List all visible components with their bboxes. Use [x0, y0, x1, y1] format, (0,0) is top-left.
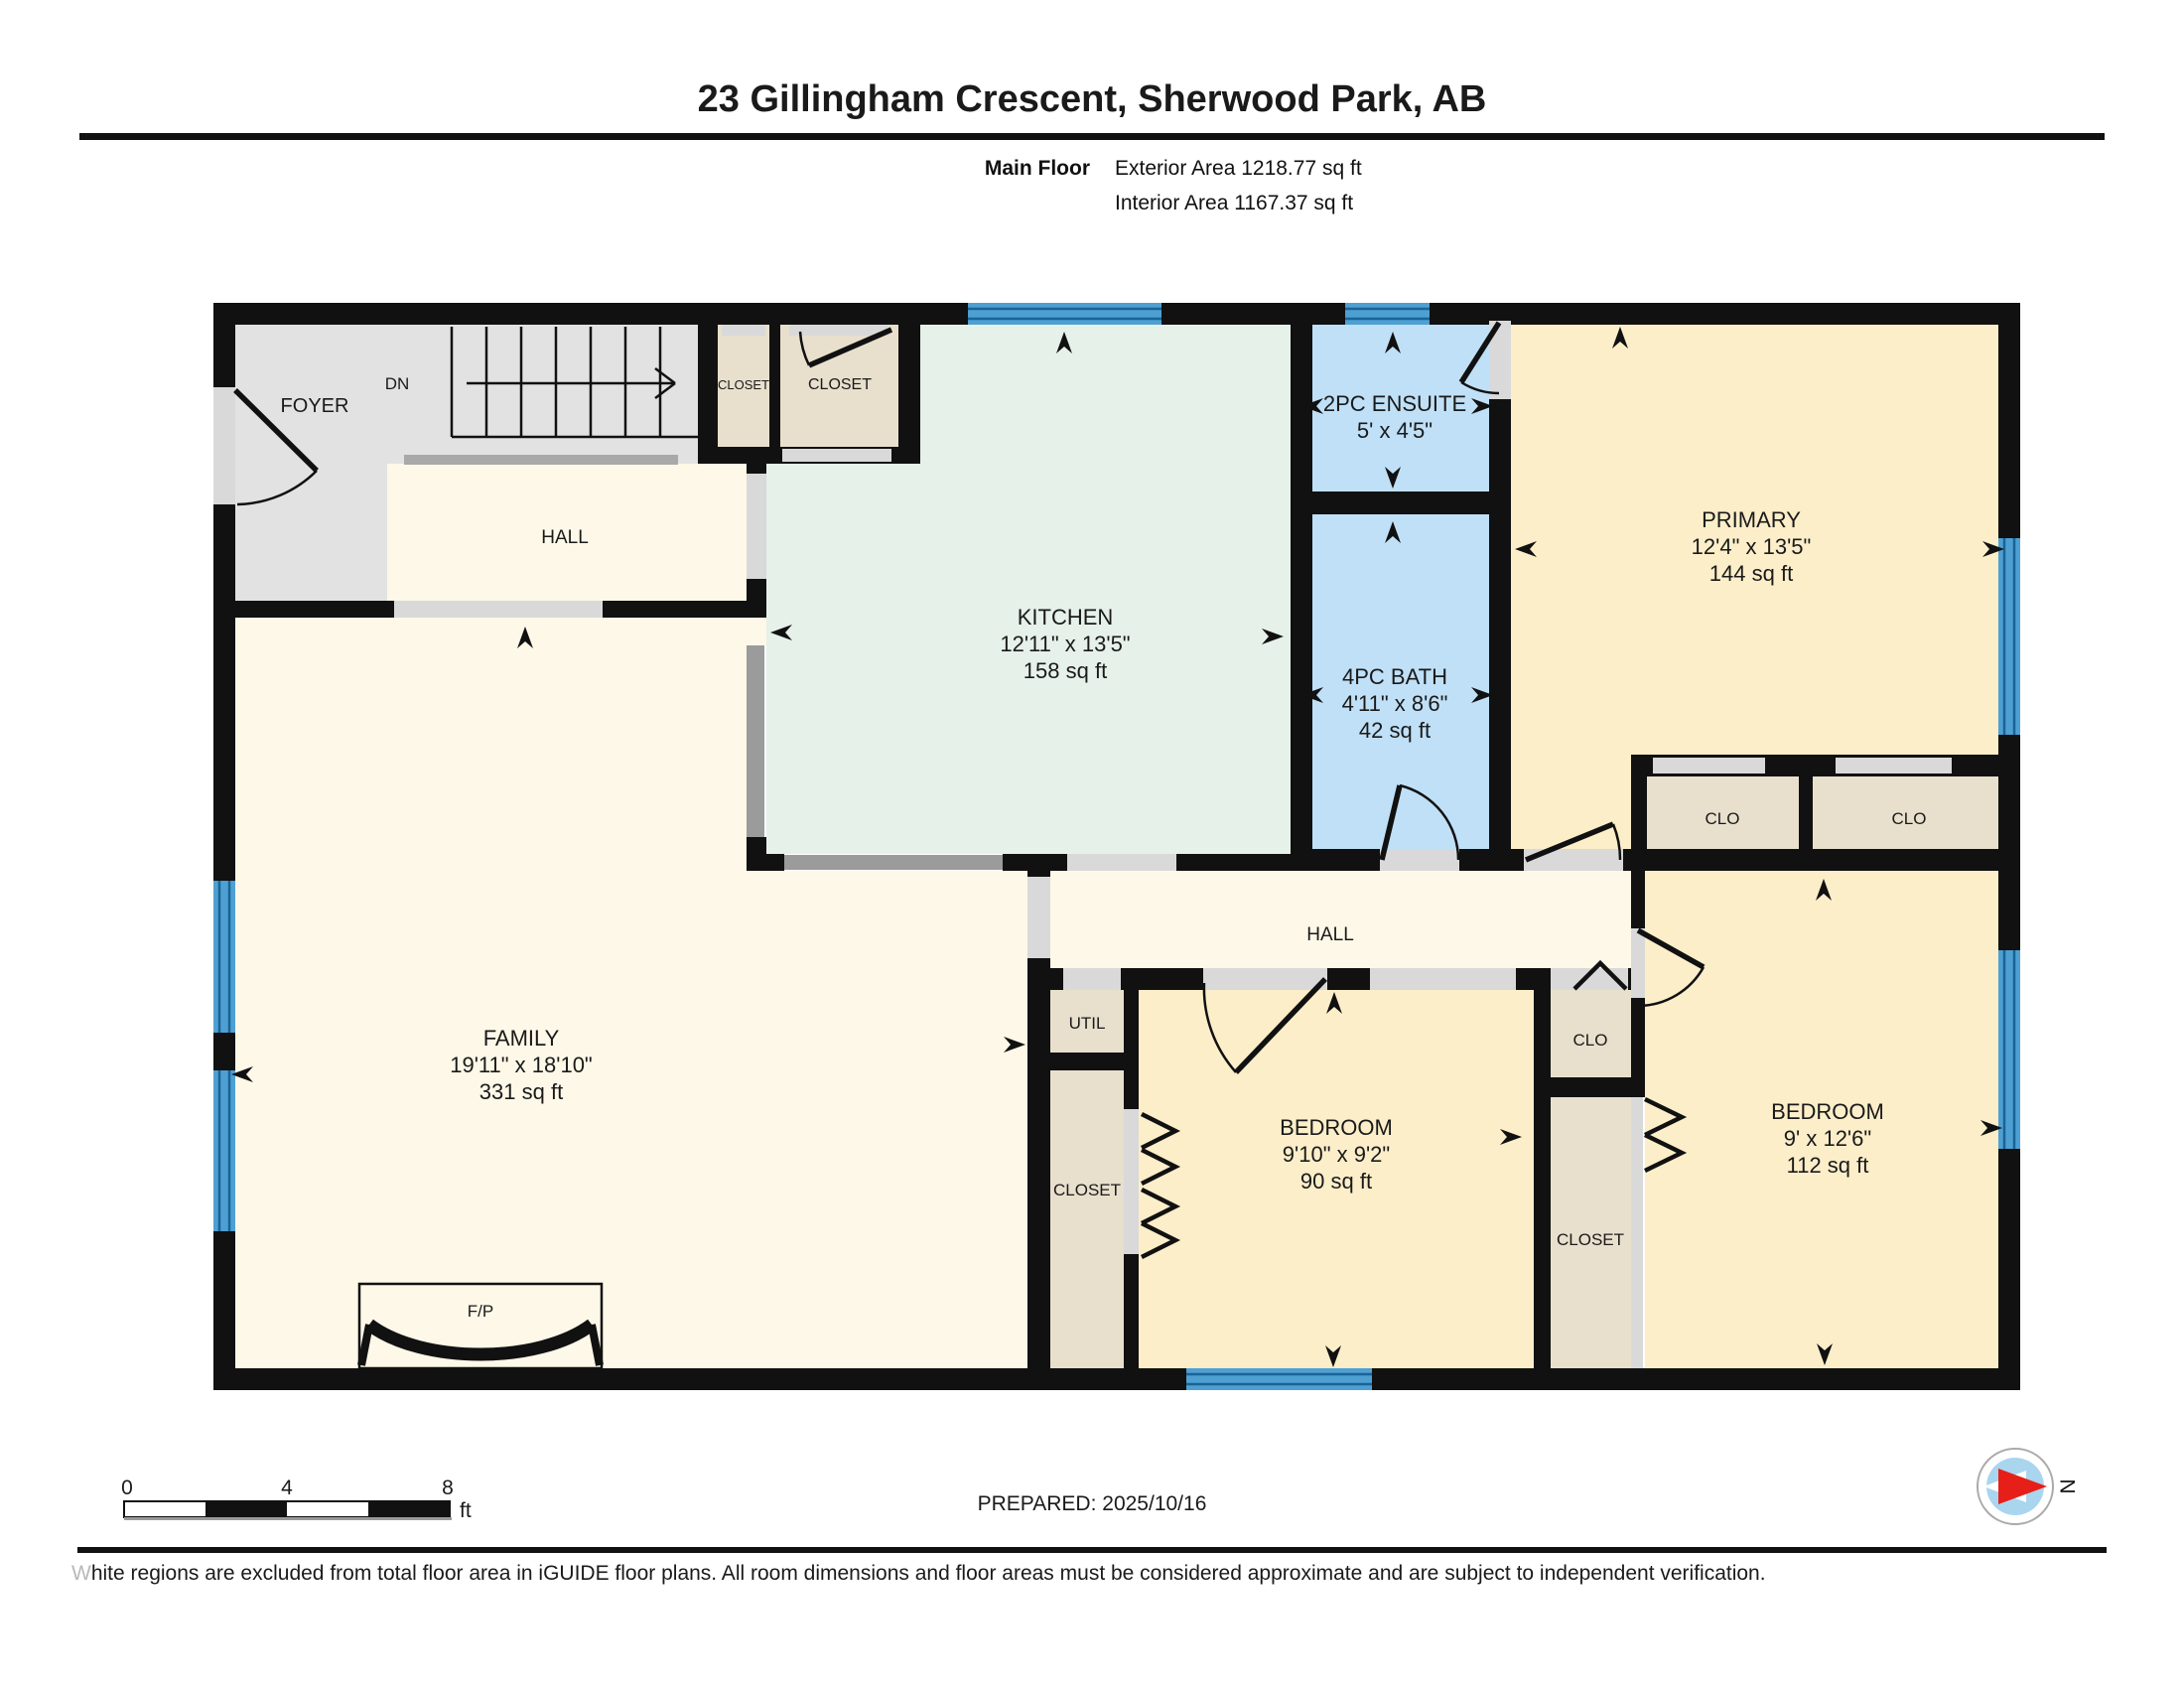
window: [1998, 950, 2020, 1149]
wall: [898, 325, 920, 464]
room-family: [235, 618, 747, 1368]
wall: [1534, 990, 1551, 1368]
wall: [766, 854, 784, 871]
wall: [1050, 968, 1063, 990]
room-label-closet: CLOSET: [808, 376, 872, 393]
room-dims-primary: 12'4" x 13'5": [1692, 534, 1812, 559]
hall-kitchen-opening: [747, 474, 766, 579]
wall: [1124, 1254, 1139, 1368]
room-label-clo: CLO: [1573, 1031, 1608, 1050]
disclaimer-rest: hite regions are excluded from total flo…: [91, 1562, 1766, 1585]
closet-opening: [789, 325, 888, 336]
wall: [747, 837, 766, 871]
wall: [1623, 849, 1998, 871]
room-area-kitchen: 158 sq ft: [1024, 658, 1107, 683]
family-hall-opening: [1027, 877, 1050, 958]
wall: [698, 325, 718, 464]
clo-opening: [1836, 758, 1952, 774]
wall: [769, 325, 780, 447]
page-title: 23 Gillingham Crescent, Sherwood Park, A…: [698, 78, 1487, 120]
clo-opening: [1653, 758, 1765, 774]
room-fills: [235, 325, 1998, 1368]
closet-opening: [722, 325, 765, 336]
hall-bedroom-opening: [1370, 968, 1516, 990]
floorplan-canvas: 23 Gillingham Crescent, Sherwood Park, A…: [0, 0, 2184, 1688]
wall: [1459, 849, 1524, 871]
room-area-bedroom-right: 112 sq ft: [1787, 1153, 1869, 1178]
window: [1998, 538, 2020, 735]
header: 23 Gillingham Crescent, Sherwood Park, A…: [79, 78, 2105, 214]
kitchen-hall-opening: [1067, 854, 1176, 871]
wall: [1998, 303, 2020, 1390]
room-dims-ensuite: 5' x 4'5": [1357, 418, 1433, 443]
room-area-bath: 42 sq ft: [1359, 718, 1431, 743]
room-dims-bedroom-right: 9' x 12'6": [1784, 1126, 1871, 1151]
room-label-hall-lower: HALL: [1306, 924, 1354, 945]
wall: [1799, 776, 1813, 849]
room-dims-bedroom-center: 9'10" x 9'2": [1283, 1142, 1390, 1167]
floor-label: Main Floor: [985, 157, 1090, 180]
footer-divider: [77, 1547, 2107, 1553]
room-hall-lower: [1050, 871, 1631, 968]
room-label-ensuite: 2PC ENSUITE: [1323, 391, 1466, 416]
fireplace-label: F/P: [468, 1302, 493, 1321]
room-label-kitchen: KITCHEN: [1018, 605, 1114, 630]
room-dims-family: 19'11" x 18'10": [450, 1053, 593, 1077]
compass-icon: N: [1978, 1449, 2079, 1524]
bath-door-opening: [1380, 849, 1459, 871]
window: [1345, 303, 1430, 325]
room-label-util: UTIL: [1069, 1014, 1106, 1033]
room-label-closet: CLOSET: [1053, 1181, 1121, 1199]
window: [213, 1070, 235, 1231]
wall: [1631, 849, 1645, 928]
wall: [1050, 1053, 1124, 1070]
room-label-closet: CLOSET: [1557, 1230, 1624, 1249]
bedroom-door-opening: [1203, 968, 1327, 990]
room-area-family: 331 sq ft: [479, 1079, 563, 1104]
wall: [747, 464, 766, 474]
room-foyer: [235, 325, 700, 464]
exterior-area: Exterior Area 1218.77 sq ft: [1115, 157, 1362, 180]
scale-bar-segment: [368, 1501, 450, 1517]
interior-area: Interior Area 1167.37 sq ft: [1115, 192, 1353, 214]
wall: [1291, 492, 1511, 514]
wall: [1312, 849, 1380, 871]
closet-bifold-opening: [1124, 1109, 1139, 1254]
hall-family-opening: [394, 601, 603, 618]
room-primary-lobe: [1511, 755, 1631, 849]
room-label-hall-upper: HALL: [541, 527, 589, 548]
half-wall: [747, 645, 764, 837]
scale-bar-shadow: [124, 1517, 452, 1520]
window: [1186, 1368, 1372, 1390]
room-label-clo: CLO: [1706, 809, 1740, 828]
scale-unit: ft: [460, 1499, 472, 1522]
room-foyer-lower: [235, 464, 387, 601]
half-wall: [784, 855, 1003, 870]
room-label-primary: PRIMARY: [1702, 507, 1801, 532]
wall: [1534, 1077, 1645, 1097]
room-dims-kitchen: 12'11" x 13'5": [1000, 632, 1130, 656]
wall: [603, 601, 766, 618]
room-family-right: [747, 871, 1027, 1368]
wall: [1327, 968, 1370, 990]
room-label-family: FAMILY: [483, 1026, 560, 1051]
bedroom-door-opening: [1631, 928, 1645, 998]
disclaimer: White regions are excluded from total fl…: [71, 1562, 1766, 1585]
wall: [747, 579, 766, 618]
floorplan-page: 23 Gillingham Crescent, Sherwood Park, A…: [0, 0, 2184, 1688]
room-label-bath: 4PC BATH: [1342, 664, 1447, 689]
wall: [1121, 968, 1203, 990]
room-label-foyer: FOYER: [281, 395, 349, 417]
wall: [1631, 998, 1645, 1097]
wall: [1027, 854, 1050, 877]
room-area-bedroom-center: 90 sq ft: [1300, 1169, 1372, 1194]
front-door-opening: [213, 387, 235, 504]
room-closet-bedroom-center: [1050, 1070, 1124, 1368]
disclaimer-lead: W: [71, 1562, 91, 1585]
kitchen-hall-gap: [747, 616, 766, 645]
title-divider: [79, 133, 2105, 140]
closet-opening: [782, 449, 891, 462]
wall: [235, 601, 394, 618]
room-kitchen-upper: [920, 325, 1291, 464]
stair-landing: [404, 455, 678, 465]
scale-bar: 0 4 8 ft: [121, 1477, 472, 1522]
prepared-date: PREPARED: 2025/10/16: [978, 1492, 1207, 1515]
room-label-clo: CLO: [1892, 809, 1927, 828]
scale-tick-4: 4: [281, 1477, 293, 1499]
compass-north-label: N: [2056, 1478, 2079, 1493]
window: [968, 303, 1161, 325]
wall: [1027, 958, 1050, 1368]
scale-bar-segment: [205, 1501, 287, 1517]
util-opening: [1063, 968, 1121, 990]
wall: [213, 1368, 2020, 1390]
scale-tick-0: 0: [121, 1477, 133, 1499]
room-label-bedroom-center: BEDROOM: [1280, 1115, 1393, 1140]
window: [213, 881, 235, 1033]
closet-bifold-opening: [1631, 1097, 1643, 1368]
wall: [1516, 968, 1551, 990]
scale-tick-8: 8: [442, 1477, 454, 1499]
stairs-dn-label: DN: [385, 374, 410, 393]
room-area-primary: 144 sq ft: [1709, 561, 1793, 586]
room-dims-bath: 4'11" x 8'6": [1342, 691, 1448, 716]
room-label-bedroom-right: BEDROOM: [1771, 1099, 1884, 1124]
room-label-closet: CLOSET: [718, 377, 769, 392]
wall: [1291, 303, 1312, 871]
